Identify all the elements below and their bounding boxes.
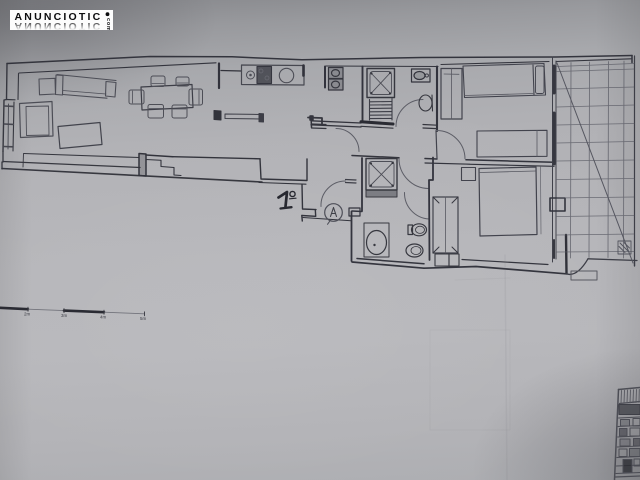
svg-text:2m: 2m xyxy=(24,312,31,317)
svg-text:4m: 4m xyxy=(100,314,107,319)
svg-text:3m: 3m xyxy=(61,313,68,318)
svg-text:5m: 5m xyxy=(140,316,147,321)
